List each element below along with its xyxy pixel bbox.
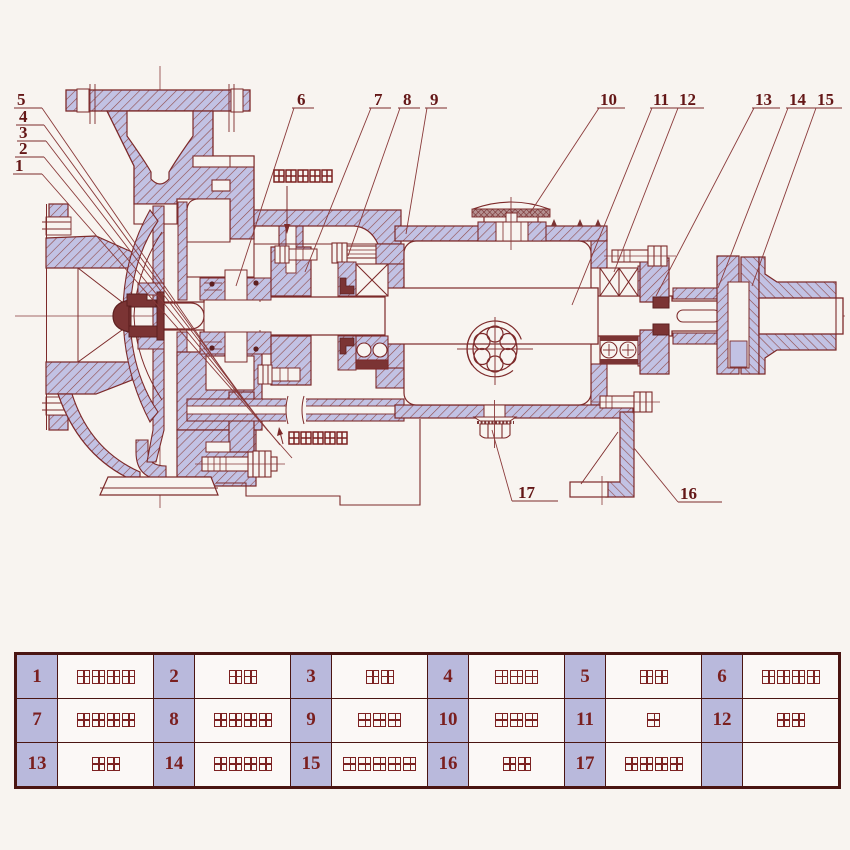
svg-text:1: 1 <box>15 156 24 175</box>
svg-text:15: 15 <box>817 90 834 109</box>
svg-text:14: 14 <box>789 90 807 109</box>
svg-text:7: 7 <box>374 90 383 109</box>
svg-text:17: 17 <box>518 483 536 502</box>
svg-text:10: 10 <box>600 90 617 109</box>
svg-text:9: 9 <box>430 90 439 109</box>
svg-text:12: 12 <box>679 90 696 109</box>
svg-text:11: 11 <box>653 90 669 109</box>
svg-text:6: 6 <box>297 90 306 109</box>
svg-text:16: 16 <box>680 484 697 503</box>
svg-text:8: 8 <box>403 90 412 109</box>
svg-text:13: 13 <box>755 90 772 109</box>
